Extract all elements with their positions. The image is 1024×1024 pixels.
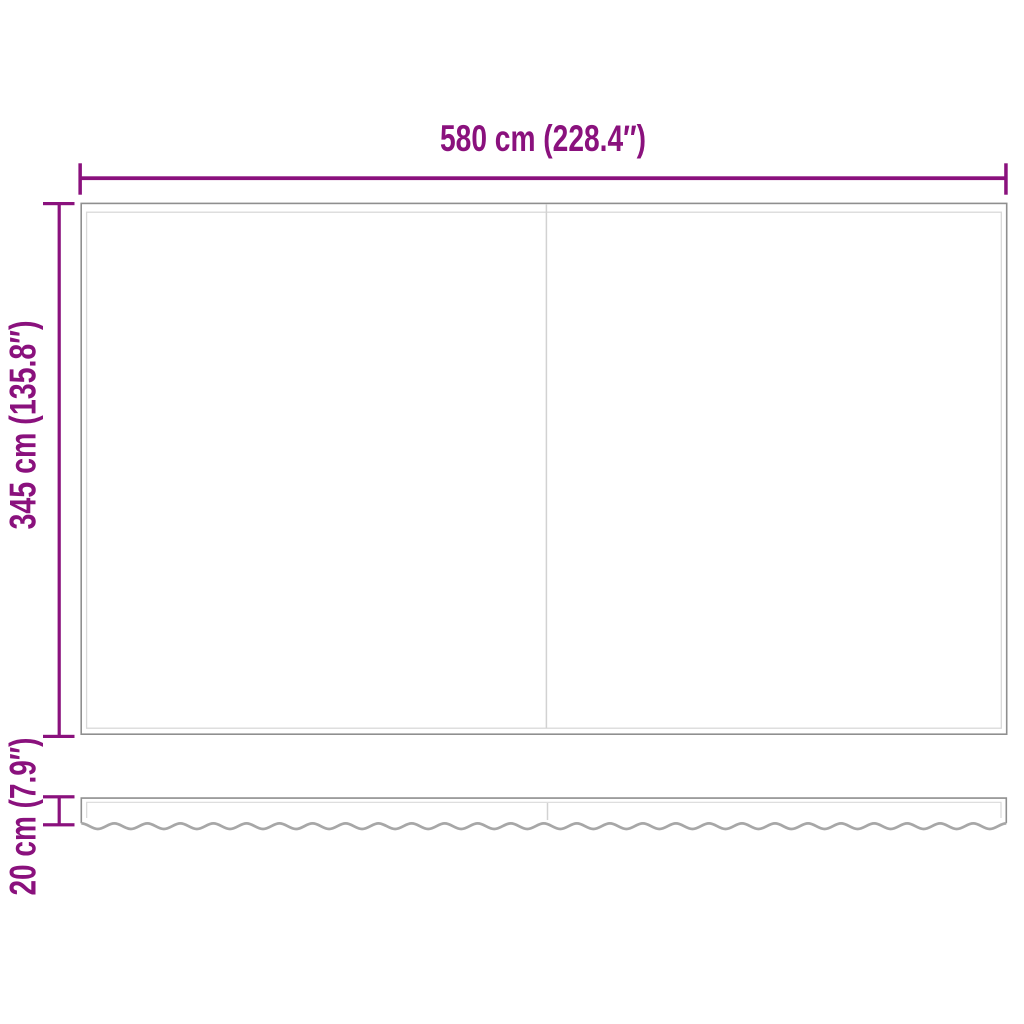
svg-text:20 cm (7.9″): 20 cm (7.9″): [3, 738, 44, 896]
svg-text:580 cm (228.4″): 580 cm (228.4″): [440, 118, 646, 159]
svg-text:345 cm (135.8″): 345 cm (135.8″): [3, 321, 44, 530]
